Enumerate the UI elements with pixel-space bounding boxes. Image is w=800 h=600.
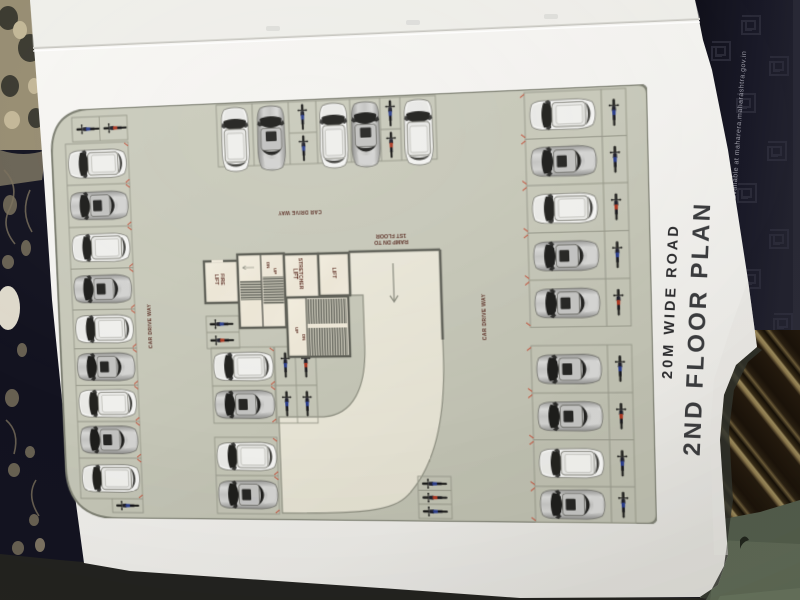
svg-text:DN: DN bbox=[301, 334, 306, 341]
svg-text:RAMP DN TO1ST FLOOR: RAMP DN TO1ST FLOOR bbox=[374, 231, 408, 245]
svg-text:CAR DRIVE WAY: CAR DRIVE WAY bbox=[278, 208, 322, 216]
svg-text:UP: UP bbox=[294, 327, 299, 333]
svg-text:LIFT: LIFT bbox=[330, 267, 336, 278]
svg-text:FIRELIFT: FIRELIFT bbox=[213, 274, 225, 287]
svg-text:DN: DN bbox=[266, 262, 271, 269]
svg-text:UP: UP bbox=[273, 268, 278, 275]
